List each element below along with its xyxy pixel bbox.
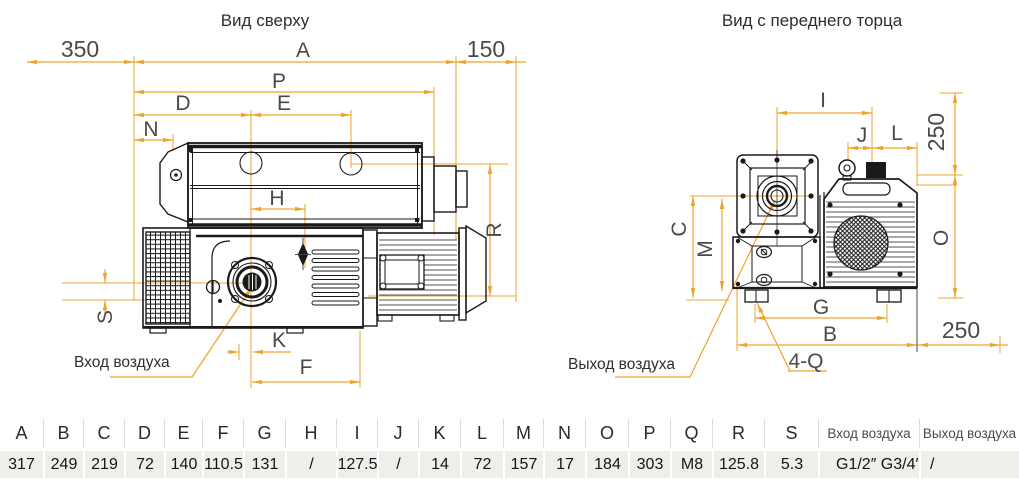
table-header-cell: H <box>285 419 336 448</box>
dim-label-b: B <box>823 323 837 346</box>
table-header-row: A B C D E F G H I J K L M N O P Q R S Вх… <box>0 419 1019 448</box>
table-header-cell: J <box>377 419 418 448</box>
dimension-table: A B C D E F G H I J K L M N O P Q R S Вх… <box>0 419 1019 478</box>
top-view: Вид сверху <box>27 11 526 388</box>
table-value-cell-inlet: G1/2″ G3/4″ <box>818 451 919 478</box>
dim-label-350: 350 <box>61 36 99 62</box>
table-header-cell: B <box>43 419 83 448</box>
table-value-cell: 110.5 <box>202 451 243 478</box>
table-header-cell: K <box>418 419 460 448</box>
direction-marker-icon <box>295 238 311 270</box>
table-value-cell: M8 <box>670 451 712 478</box>
table-value-row: 317 249 219 72 140 110.5 131 / 127.5 / 1… <box>0 451 1019 478</box>
dim-label-r: R <box>483 222 506 237</box>
table-value-cell-outlet: / <box>919 451 1019 478</box>
table-value-cell: 127.5 <box>336 451 377 478</box>
dim-label-p: P <box>272 70 286 93</box>
dim-label-a: A <box>296 39 310 62</box>
table-header-cell: E <box>164 419 202 448</box>
table-header-cell-outlet: Выход воздуха <box>919 419 1019 448</box>
dim-label-250-vertical: 250 <box>923 113 949 151</box>
front-view-title: Вид с переднего торца <box>722 11 903 30</box>
fan-grille-icon <box>834 216 888 270</box>
table-header-cell: G <box>243 419 285 448</box>
front-view: Вид с переднего торца <box>568 11 1008 377</box>
eye-bolt-icon <box>839 160 855 180</box>
table-value-cell: 14 <box>418 451 460 478</box>
table-value-cell: / <box>285 451 336 478</box>
air-inlet-label: Вход воздуха <box>74 354 170 371</box>
table-value-cell: 140 <box>164 451 202 478</box>
dim-label-4q: 4-Q <box>788 350 823 373</box>
dim-label-d: D <box>175 92 190 115</box>
junction-box <box>866 162 886 178</box>
table-header-cell: L <box>460 419 503 448</box>
front-view-pump-body <box>733 150 917 302</box>
table-value-cell: 157 <box>503 451 543 478</box>
dim-label-g: G <box>813 296 829 319</box>
air-outlet-label: Выход воздуха <box>568 356 675 373</box>
table-value-cell: 5.3 <box>764 451 818 478</box>
dim-label-k: K <box>272 329 286 352</box>
dim-label-i: I <box>820 89 826 112</box>
table-value-cell: 317 <box>0 451 43 478</box>
top-view-title: Вид сверху <box>221 11 310 30</box>
table-header-cell: Q <box>670 419 712 448</box>
dim-label-f: F <box>300 356 313 379</box>
dim-label-c: C <box>668 221 691 236</box>
table-header-cell: R <box>712 419 764 448</box>
table-value-cell: 219 <box>83 451 124 478</box>
dim-label-250-horizontal: 250 <box>942 317 980 343</box>
dim-label-h: H <box>269 187 284 210</box>
dim-label-m: M <box>694 240 717 258</box>
table-header-cell: M <box>503 419 543 448</box>
table-value-cell: 72 <box>460 451 503 478</box>
table-header-cell: N <box>543 419 585 448</box>
table-header-cell: A <box>0 419 43 448</box>
table-value-cell: 184 <box>585 451 628 478</box>
dim-label-o: O <box>930 230 953 246</box>
table-header-cell: I <box>336 419 377 448</box>
table-value-cell: 72 <box>124 451 164 478</box>
table-value-cell: 249 <box>43 451 83 478</box>
dim-label-e: E <box>277 92 291 115</box>
dim-label-s: S <box>94 310 117 324</box>
table-header-cell: C <box>83 419 124 448</box>
dim-label-l: L <box>891 122 903 145</box>
table-header-cell: O <box>585 419 628 448</box>
dim-label-j: J <box>857 124 868 147</box>
technical-drawing: Вид сверху <box>0 0 1019 415</box>
table-value-cell: 303 <box>628 451 670 478</box>
table-header-cell-inlet: Вход воздуха <box>818 419 919 448</box>
table-value-cell: 17 <box>543 451 585 478</box>
table-header-cell: F <box>202 419 243 448</box>
table-header-cell: S <box>764 419 818 448</box>
table-header-cell: P <box>628 419 670 448</box>
table-header-cell: D <box>124 419 164 448</box>
dim-label-150: 150 <box>467 36 505 62</box>
table-value-cell: 125.8 <box>712 451 764 478</box>
table-value-cell: / <box>377 451 418 478</box>
dim-label-n: N <box>143 118 158 141</box>
table-value-cell: 131 <box>243 451 285 478</box>
top-view-pump-body <box>143 143 486 333</box>
